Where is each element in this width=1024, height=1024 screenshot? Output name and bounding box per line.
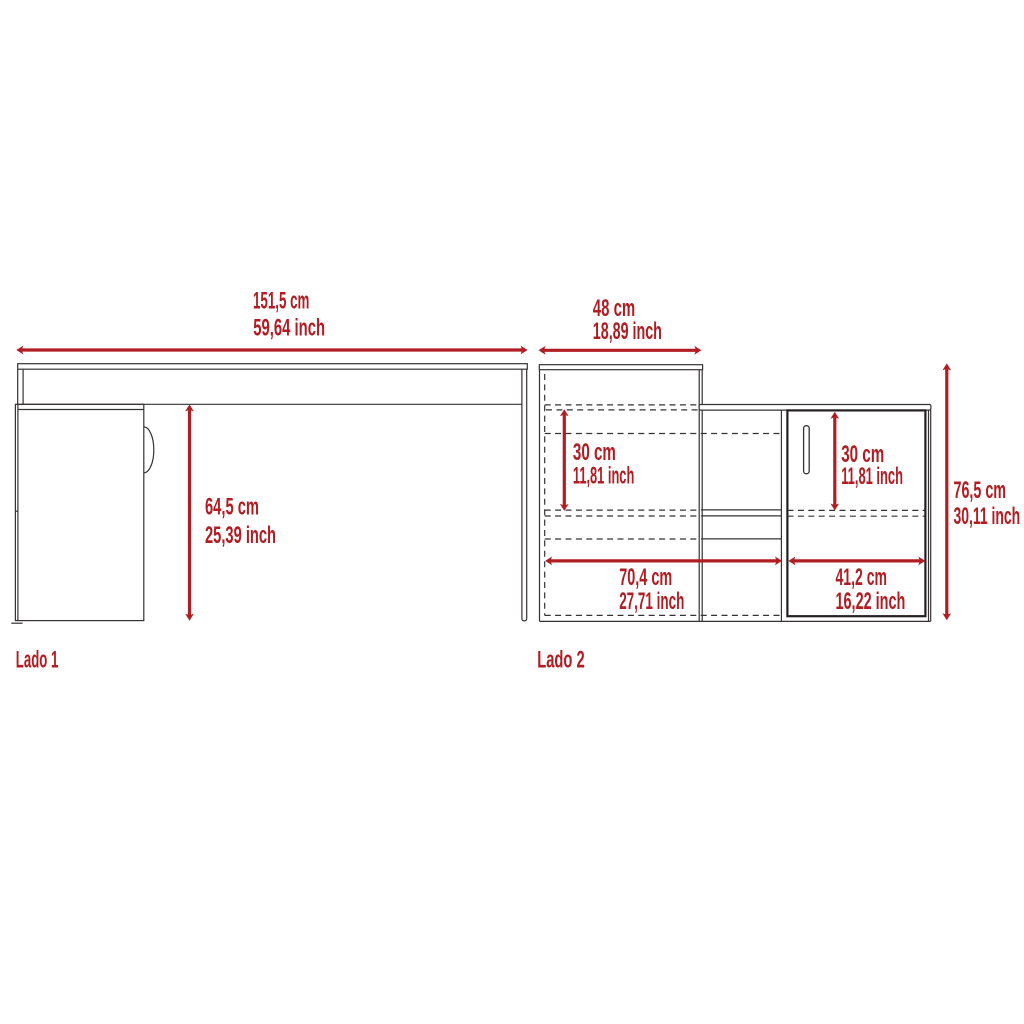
svg-text:18,89 inch: 18,89 inch	[593, 318, 662, 345]
svg-text:59,64 inch: 59,64 inch	[253, 315, 325, 342]
svg-text:25,39 inch: 25,39 inch	[205, 522, 276, 549]
svg-text:30,11 inch: 30,11 inch	[954, 503, 1021, 530]
svg-text:16,22 inch: 16,22 inch	[836, 588, 906, 615]
svg-text:27,71 inch: 27,71 inch	[619, 588, 684, 615]
svg-text:64,5 cm: 64,5 cm	[205, 494, 259, 521]
svg-text:Lado 2: Lado 2	[537, 646, 585, 673]
svg-text:151,5 cm: 151,5 cm	[253, 288, 309, 315]
svg-text:11,81 inch: 11,81 inch	[573, 463, 634, 490]
svg-text:41,2 cm: 41,2 cm	[836, 564, 888, 591]
svg-text:Lado 1: Lado 1	[16, 646, 58, 673]
svg-text:11,81 inch: 11,81 inch	[841, 463, 903, 490]
svg-text:76,5 cm: 76,5 cm	[954, 477, 1007, 504]
